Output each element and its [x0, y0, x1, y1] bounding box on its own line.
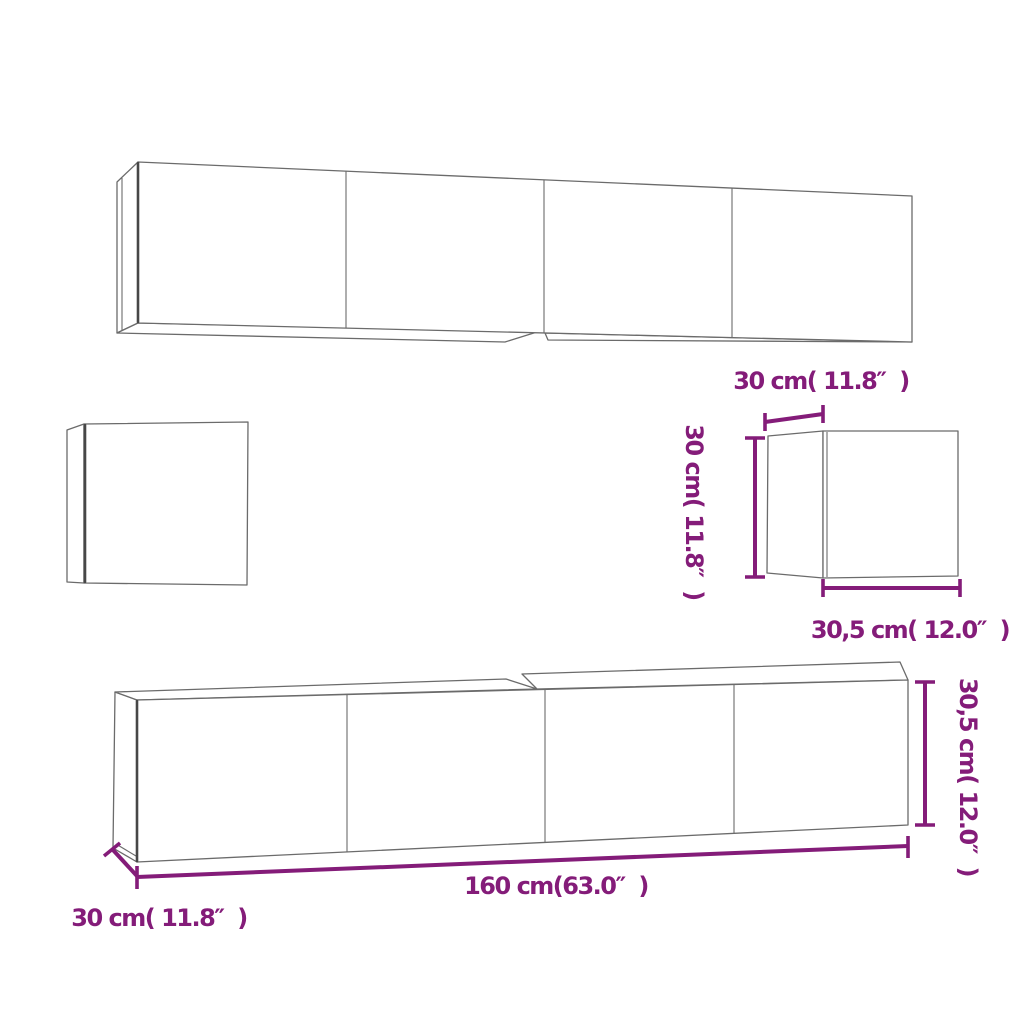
cabinet-drawings	[67, 162, 958, 862]
top-cabinet-side-panel	[117, 162, 138, 333]
bottom-tv-cabinet	[113, 662, 908, 862]
label-bottom-unit-depth: 30 cm( 11.8″ )	[71, 904, 246, 932]
small-cabinet-side-panel	[67, 424, 84, 583]
cube-depth-dimension	[765, 405, 823, 431]
label-top-unit-depth: 30 cm( 11.8″ )	[733, 367, 908, 395]
small-cabinet-front-face	[84, 422, 248, 585]
label-small-unit-height: 30 cm( 11.8″ )	[680, 424, 708, 599]
label-bottom-unit-width: 160 cm(63.0″ )	[464, 872, 648, 900]
cube-width-dimension	[823, 579, 960, 597]
bottom-cabinet-front-face	[137, 680, 908, 862]
top-cabinet-front-face	[138, 162, 912, 342]
diagram-canvas: 30 cm( 11.8″ ) 30 cm( 11.8″ ) 30,5 cm( 1…	[0, 0, 1024, 1024]
top-wall-cabinet	[117, 162, 912, 342]
cube-cabinet-right	[767, 431, 958, 578]
small-square-cabinet-left	[67, 422, 248, 585]
cube-cabinet-side-panel	[767, 431, 823, 578]
bottom-cabinet-side-panel	[113, 692, 137, 862]
label-small-unit-width: 30,5 cm( 12.0″ )	[811, 616, 1009, 644]
cube-cabinet-front-face	[823, 431, 958, 578]
product-dimension-diagram: 30 cm( 11.8″ ) 30 cm( 11.8″ ) 30,5 cm( 1…	[0, 0, 1024, 1024]
dimension-line	[765, 414, 823, 422]
label-bottom-unit-height: 30,5 cm( 12.0″ )	[954, 678, 982, 876]
bottom-height-dimension	[915, 682, 935, 825]
cube-height-dimension	[745, 438, 765, 577]
